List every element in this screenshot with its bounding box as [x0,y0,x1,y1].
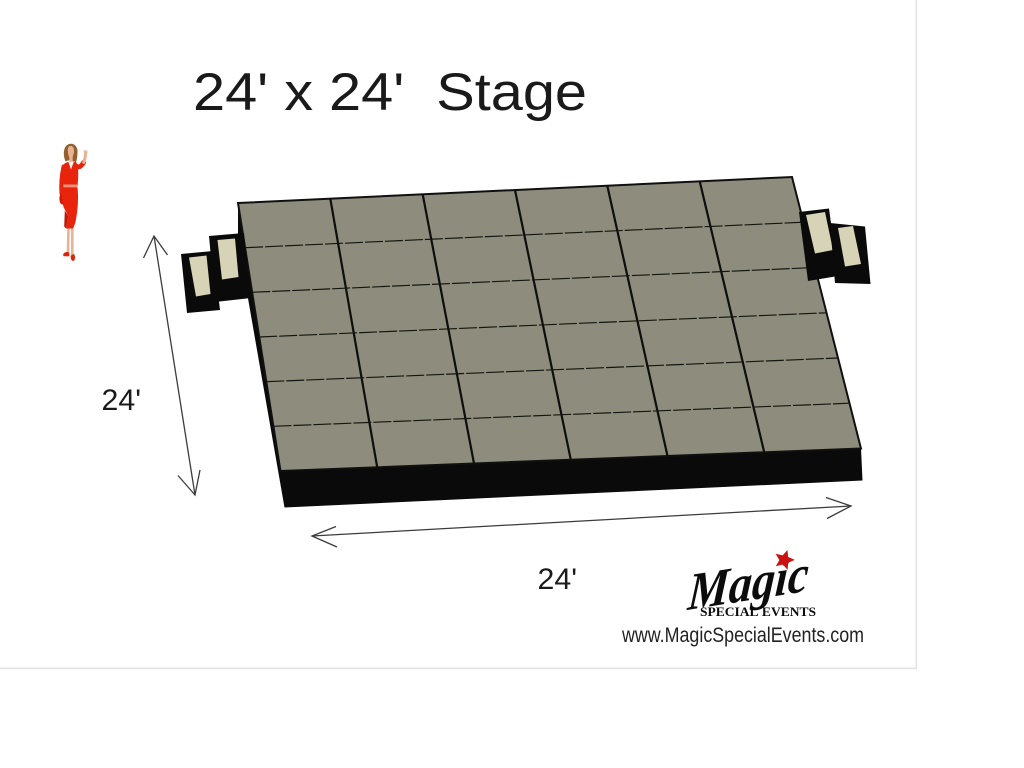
svg-text:24': 24' [102,384,142,417]
svg-text:SPECIAL EVENTS: SPECIAL EVENTS [700,604,816,619]
svg-text:24' x 24' Stage: 24' x 24' Stage [193,63,587,122]
svg-text:24': 24' [538,563,578,596]
svg-text:www.MagicSpecialEvents.com: www.MagicSpecialEvents.com [621,623,864,647]
